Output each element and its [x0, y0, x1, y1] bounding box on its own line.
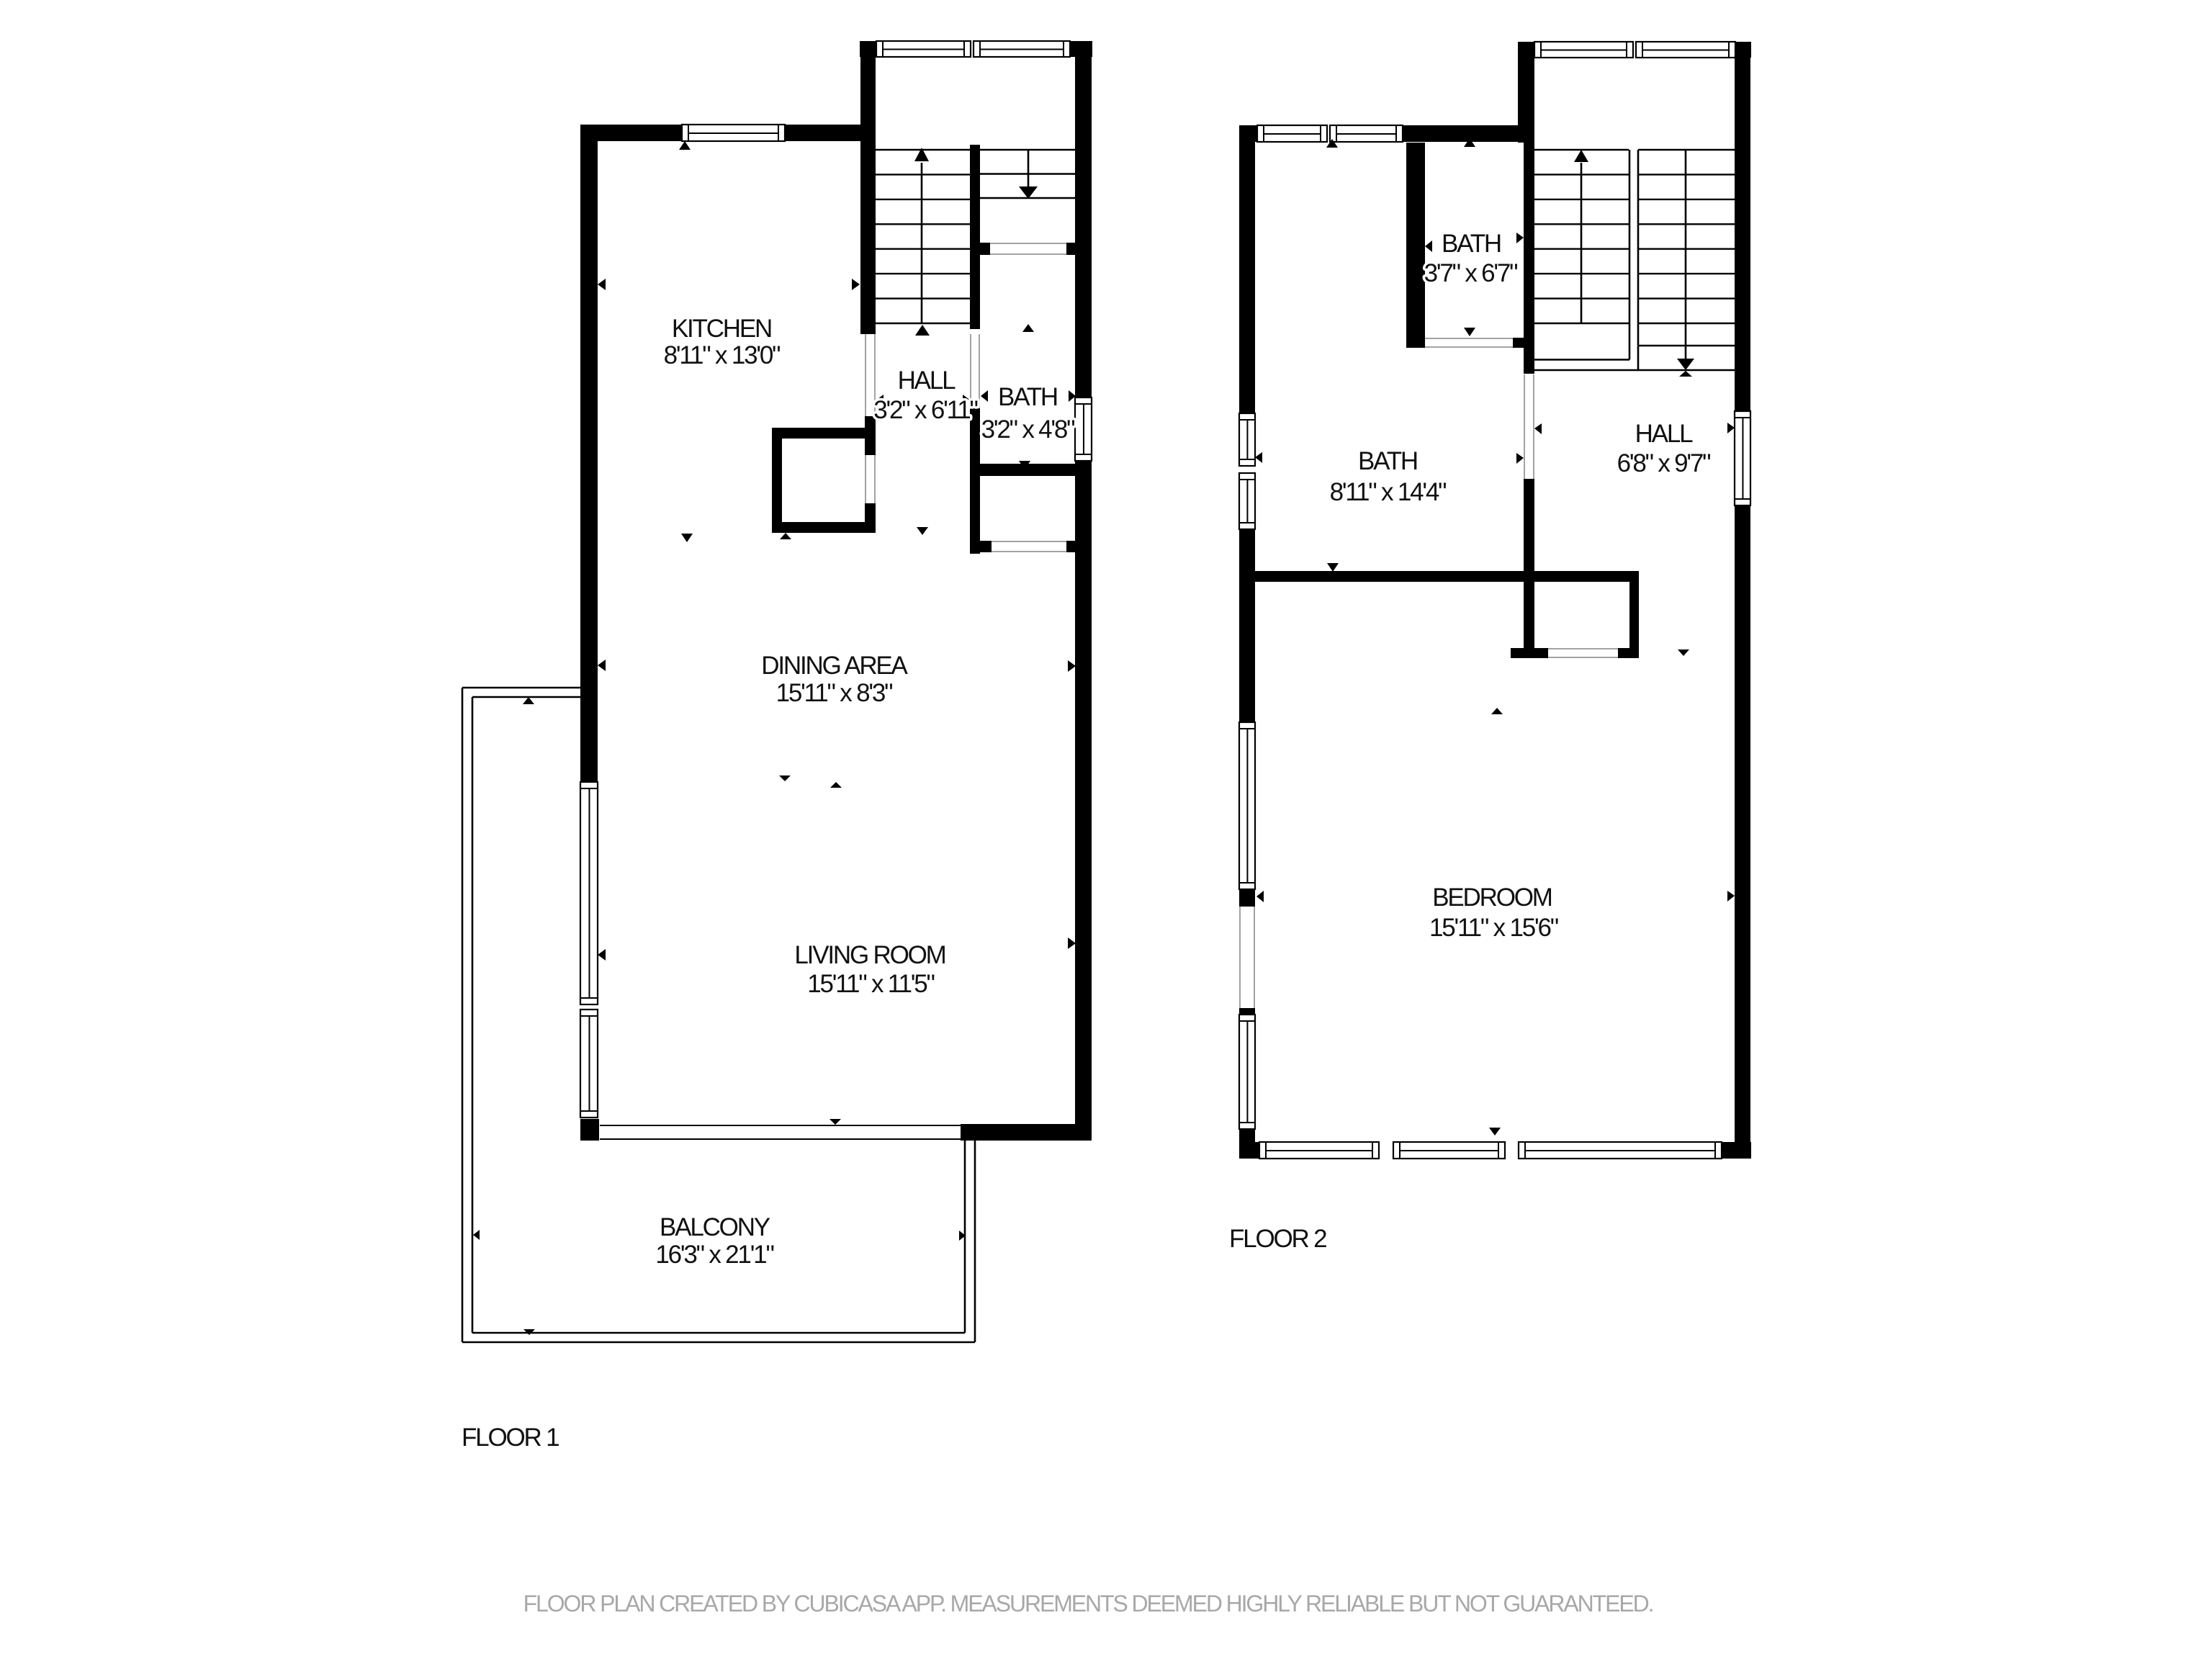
svg-text:8'11" x 13'0": 8'11" x 13'0" — [664, 341, 781, 369]
svg-text:FLOOR PLAN CREATED BY CUBICASA: FLOOR PLAN CREATED BY CUBICASA APP. MEAS… — [523, 1591, 1653, 1617]
svg-text:FLOOR 1: FLOOR 1 — [462, 1424, 559, 1452]
svg-text:3'2" x 6'11": 3'2" x 6'11" — [873, 396, 977, 424]
svg-text:15'11" x 11'5": 15'11" x 11'5" — [807, 970, 934, 998]
svg-text:15'11" x 8'3": 15'11" x 8'3" — [776, 679, 893, 707]
svg-text:15'11" x 15'6": 15'11" x 15'6" — [1429, 914, 1558, 942]
svg-text:6'8" x 9'7": 6'8" x 9'7" — [1617, 449, 1711, 477]
svg-text:BATH: BATH — [1358, 447, 1417, 475]
svg-text:HALL: HALL — [1635, 420, 1693, 448]
svg-text:BATH: BATH — [998, 383, 1057, 411]
svg-text:3'2" x 4'8": 3'2" x 4'8" — [981, 415, 1075, 444]
svg-text:BALCONY: BALCONY — [660, 1213, 770, 1241]
svg-text:16'3" x 21'1": 16'3" x 21'1" — [655, 1241, 773, 1269]
svg-text:FLOOR 2: FLOOR 2 — [1229, 1225, 1326, 1253]
svg-text:8'11" x 14'4": 8'11" x 14'4" — [1330, 478, 1447, 506]
svg-text:BATH: BATH — [1442, 230, 1501, 258]
svg-text:KITCHEN: KITCHEN — [672, 315, 771, 343]
svg-text:DINING AREA: DINING AREA — [761, 652, 908, 680]
svg-text:3'7" x 6'7": 3'7" x 6'7" — [1424, 259, 1518, 287]
svg-text:LIVING ROOM: LIVING ROOM — [794, 941, 945, 969]
svg-text:HALL: HALL — [898, 367, 956, 395]
svg-text:BEDROOM: BEDROOM — [1432, 884, 1551, 912]
